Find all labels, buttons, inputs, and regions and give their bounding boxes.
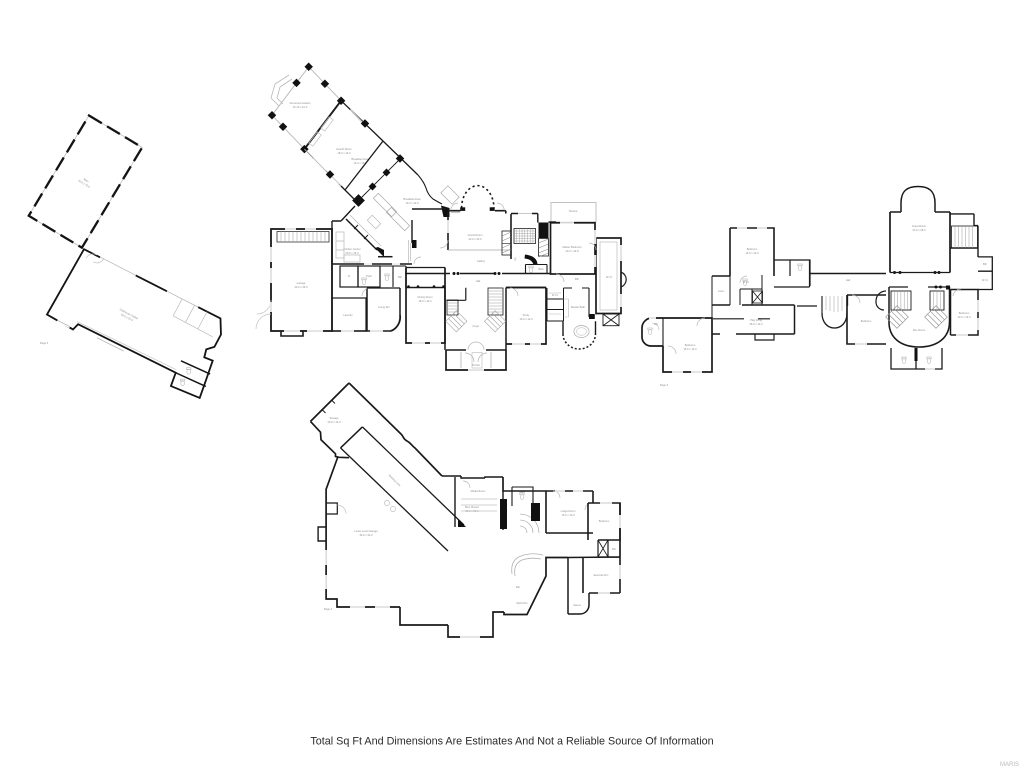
svg-text:20-0 x 13-0: 20-0 x 13-0 (327, 420, 341, 424)
svg-text:Dining Room: Dining Room (418, 295, 433, 299)
svg-text:Storage: Storage (329, 416, 339, 420)
svg-text:Bth: Bth (612, 547, 616, 551)
svg-text:Exercise Rm: Exercise Rm (594, 573, 609, 577)
svg-text:Bedroom: Bedroom (747, 247, 758, 251)
svg-text:Rec Room: Rec Room (913, 328, 925, 332)
svg-text:Up: Up (513, 257, 517, 261)
svg-text:Bath: Bath (538, 267, 544, 271)
svg-text:Terrace: Terrace (569, 209, 578, 213)
svg-text:Pwdr: Pwdr (366, 274, 372, 278)
svg-text:15-0 x 13-0: 15-0 x 13-0 (683, 347, 697, 351)
svg-text:Bedroom: Bedroom (861, 319, 872, 323)
svg-text:Garage: Garage (297, 281, 306, 285)
svg-text:Master Bath: Master Bath (571, 305, 586, 309)
svg-text:Cl: Cl (348, 274, 351, 278)
svg-text:Screened Gazebo: Screened Gazebo (290, 101, 311, 105)
svg-text:Page 3: Page 3 (660, 383, 669, 387)
svg-text:Gallery: Gallery (477, 259, 486, 263)
svg-text:Play Wing: Play Wing (750, 318, 762, 322)
svg-text:Linen: Linen (718, 289, 725, 293)
svg-text:22-0 x 20-0: 22-0 x 20-0 (468, 237, 482, 241)
svg-text:Bedroom: Bedroom (599, 519, 610, 523)
svg-text:18-0 x 16-0: 18-0 x 16-0 (337, 151, 351, 155)
svg-text:Hearth Room: Hearth Room (336, 147, 351, 151)
svg-text:Bth: Bth (398, 275, 402, 279)
svg-text:W.I.C: W.I.C (743, 280, 749, 284)
svg-text:W.I.C: W.I.C (552, 293, 558, 297)
svg-text:18-0 x 16-0: 18-0 x 16-0 (418, 299, 432, 303)
svg-text:Great Room: Great Room (912, 224, 926, 228)
svg-text:20-0 x 16-8: 20-0 x 16-8 (565, 249, 579, 253)
svg-text:Lodge Room: Lodge Room (561, 509, 576, 513)
svg-text:Study: Study (523, 313, 530, 317)
svg-text:Rec Room: Rec Room (465, 505, 480, 509)
svg-text:Breakfast Area: Breakfast Area (351, 157, 369, 161)
svg-text:Total Sq Ft And Dimensions Are: Total Sq Ft And Dimensions Are Estimates… (310, 736, 713, 748)
svg-text:Bth: Bth (654, 322, 658, 326)
svg-text:Page 4: Page 4 (324, 607, 333, 611)
svg-text:Foyer: Foyer (473, 324, 480, 328)
svg-text:Lower Level Garage: Lower Level Garage (354, 529, 378, 533)
svg-text:16-0 x 13-0: 16-0 x 13-0 (745, 251, 759, 255)
svg-text:Hall: Hall (476, 279, 481, 283)
svg-text:Scr P: Scr P (606, 275, 613, 279)
svg-text:Sauna: Sauna (573, 603, 581, 607)
svg-text:Master Bedroom: Master Bedroom (562, 245, 581, 249)
svg-text:Bar: Bar (516, 585, 520, 589)
svg-text:Bth: Bth (575, 277, 579, 281)
svg-text:Mech Rm: Mech Rm (516, 601, 527, 605)
svg-text:Bedroom: Bedroom (685, 343, 696, 347)
svg-text:Portico: Portico (472, 363, 481, 367)
svg-text:22-0 x 28-0: 22-0 x 28-0 (912, 228, 926, 232)
svg-text:W.I.C: W.I.C (982, 278, 988, 282)
svg-text:Kitchen Center: Kitchen Center (343, 247, 360, 251)
svg-text:40-0 x 33-0: 40-0 x 33-0 (294, 285, 308, 289)
svg-text:Bedroom: Bedroom (959, 311, 970, 315)
svg-text:Laundry: Laundry (343, 313, 353, 317)
svg-text:20-0 x 15-0: 20-0 x 15-0 (345, 251, 359, 255)
svg-text:Page 2: Page 2 (40, 341, 49, 345)
svg-text:13-0 x 12-0: 13-0 x 12-0 (405, 201, 419, 205)
svg-text:Grand Room: Grand Room (468, 233, 483, 237)
svg-text:12-0 x 13-0: 12-0 x 13-0 (957, 315, 971, 319)
svg-text:Bth: Bth (983, 262, 987, 266)
svg-text:Living Rm: Living Rm (378, 305, 390, 309)
svg-text:16-10 x 16-0: 16-10 x 16-0 (293, 105, 308, 109)
svg-text:Breakfast Area: Breakfast Area (403, 197, 421, 201)
svg-text:Hall: Hall (846, 278, 851, 282)
svg-text:MARIS: MARIS (1000, 762, 1019, 768)
svg-text:28-0 x 10-0: 28-0 x 10-0 (749, 322, 763, 326)
svg-text:16-0 x 14-0: 16-0 x 14-0 (519, 317, 533, 321)
svg-text:36-0 x 32-0: 36-0 x 32-0 (359, 533, 373, 537)
svg-text:Media Room: Media Room (471, 489, 486, 493)
svg-text:16-0 x 14-0: 16-0 x 14-0 (561, 513, 575, 517)
